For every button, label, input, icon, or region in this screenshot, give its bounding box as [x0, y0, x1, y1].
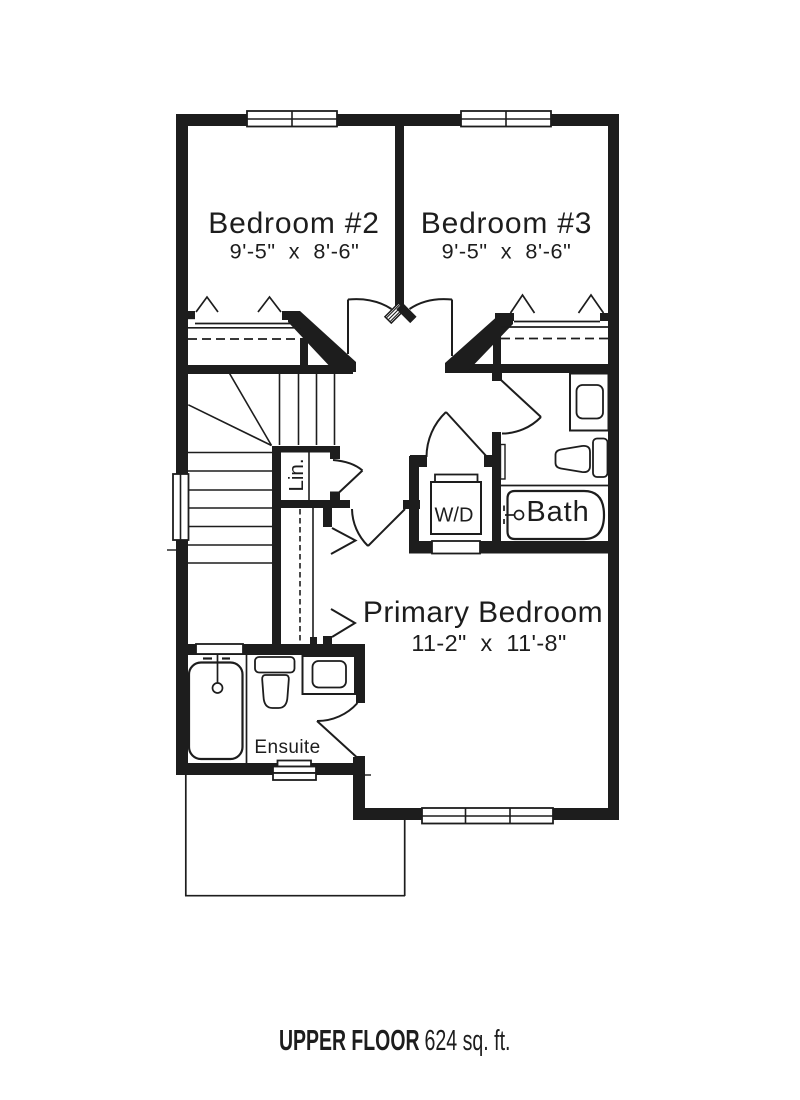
svg-text:Bedroom #2: Bedroom #2 — [208, 207, 379, 240]
svg-text:624 sq. ft.: 624 sq. ft. — [425, 1025, 511, 1057]
svg-text:9'-5" x 8'-6": 9'-5" x 8'-6" — [442, 238, 572, 263]
svg-text:Lin.: Lin. — [285, 458, 308, 491]
svg-text:11-2" x 11'-8": 11-2" x 11'-8" — [411, 630, 566, 656]
svg-text:W/D: W/D — [435, 505, 474, 527]
svg-text:UPPER FLOOR: UPPER FLOOR — [279, 1025, 420, 1057]
svg-text:Primary Bedroom: Primary Bedroom — [363, 596, 603, 629]
svg-text:Ensuite: Ensuite — [254, 737, 320, 758]
svg-text:9'-5" x 8'-6": 9'-5" x 8'-6" — [230, 238, 360, 263]
svg-text:Bedroom #3: Bedroom #3 — [421, 207, 592, 240]
svg-text:Bath: Bath — [526, 496, 589, 528]
